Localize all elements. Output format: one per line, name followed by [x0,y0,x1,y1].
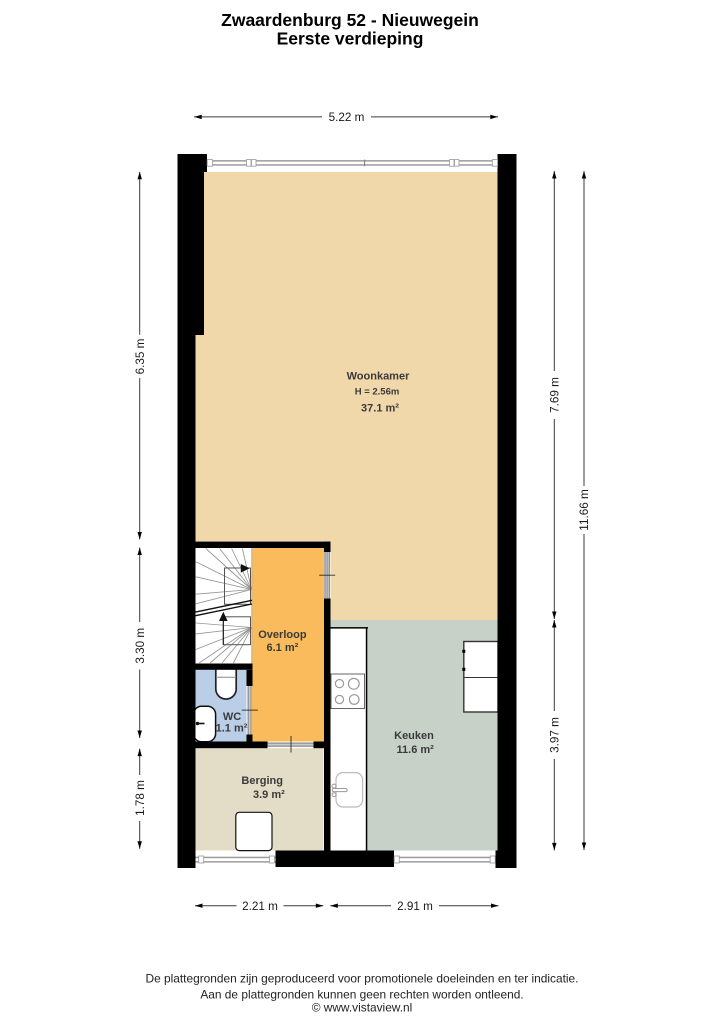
svg-text:H = 2.56m: H = 2.56m [355,386,400,397]
svg-text:1.78 m: 1.78 m [134,780,147,816]
svg-text:3.97 m: 3.97 m [549,717,562,753]
svg-text:3.30 m: 3.30 m [134,628,147,664]
svg-text:1.1 m²: 1.1 m² [216,722,248,734]
svg-text:7.69 m: 7.69 m [549,377,562,413]
svg-text:37.1 m²: 37.1 m² [361,403,399,415]
svg-text:2.21 m: 2.21 m [242,900,278,913]
svg-text:11.66 m: 11.66 m [578,489,591,530]
svg-text:6.1 m²: 6.1 m² [267,642,299,654]
svg-text:WC: WC [223,711,241,723]
svg-text:3.9 m²: 3.9 m² [253,789,285,801]
svg-text:Berging: Berging [241,775,283,787]
svg-text:2.91 m: 2.91 m [397,900,433,913]
svg-text:© www.vistaview.nl: © www.vistaview.nl [312,1000,413,1014]
svg-text:5.22 m: 5.22 m [329,111,365,124]
svg-text:6.35 m: 6.35 m [134,339,147,375]
svg-text:Overloop: Overloop [258,629,307,641]
svg-text:Keuken: Keuken [394,730,434,742]
svg-text:Woonkamer: Woonkamer [347,371,410,383]
svg-text:De plattegronden zijn geproduc: De plattegronden zijn geproduceerd voor … [146,972,579,986]
svg-text:11.6 m²: 11.6 m² [397,744,435,756]
svg-text:Eerste verdieping: Eerste verdieping [277,28,424,48]
svg-text:Zwaardenburg 52 - Nieuwegein: Zwaardenburg 52 - Nieuwegein [221,10,479,30]
